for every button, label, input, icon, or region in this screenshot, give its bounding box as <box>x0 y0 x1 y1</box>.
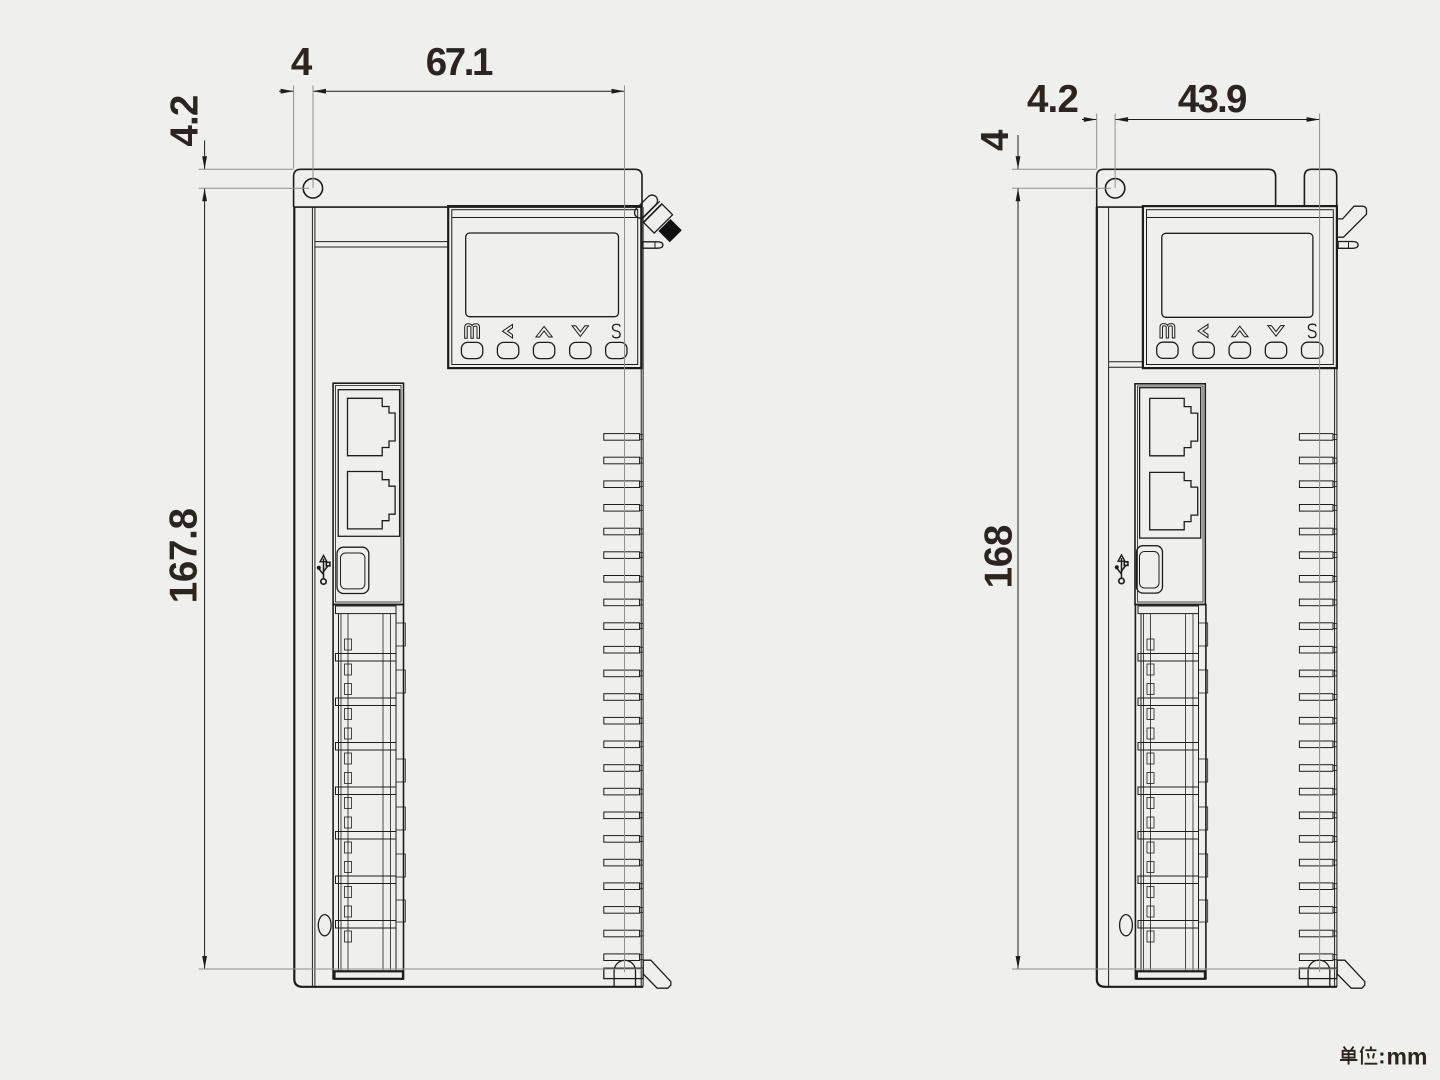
svg-text:43.9: 43.9 <box>1178 78 1246 121</box>
svg-text:168: 168 <box>978 525 1021 588</box>
svg-text:4: 4 <box>974 129 1017 151</box>
svg-text:167.8: 167.8 <box>163 508 206 603</box>
svg-text:4: 4 <box>291 41 313 84</box>
svg-text:4.2: 4.2 <box>164 96 207 147</box>
svg-text:4.2: 4.2 <box>1027 78 1078 121</box>
svg-text:67.1: 67.1 <box>426 41 493 84</box>
svg-text:mm: mm <box>1387 1043 1428 1069</box>
